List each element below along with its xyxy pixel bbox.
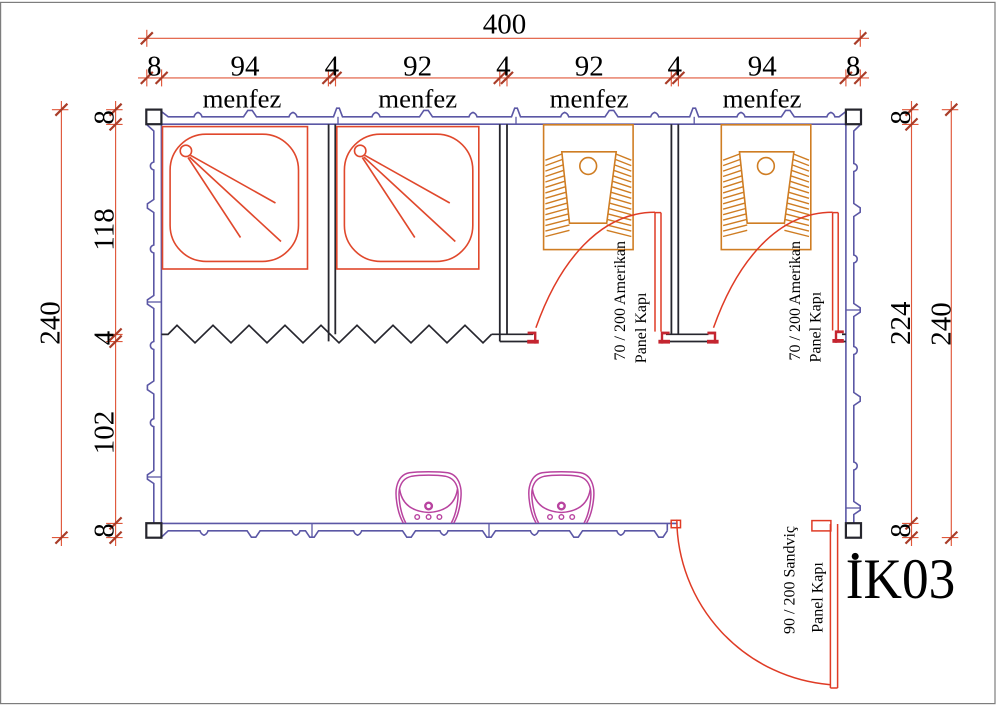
- svg-text:92: 92: [403, 50, 432, 82]
- svg-text:400: 400: [483, 9, 527, 41]
- svg-text:4: 4: [668, 50, 683, 82]
- svg-text:Panel Kapı: Panel Kapı: [633, 292, 650, 363]
- svg-text:224: 224: [885, 301, 917, 345]
- svg-text:IK03: IK03: [846, 547, 955, 610]
- svg-text:70 / 200 Amerikan: 70 / 200 Amerikan: [612, 241, 629, 361]
- svg-text:94: 94: [748, 50, 778, 82]
- svg-text:4: 4: [325, 50, 340, 82]
- svg-text:8: 8: [147, 50, 162, 82]
- svg-text:240: 240: [35, 301, 67, 345]
- svg-text:240: 240: [925, 302, 957, 346]
- svg-text:menfez: menfez: [378, 83, 457, 113]
- svg-text:118: 118: [89, 208, 121, 250]
- svg-text:8: 8: [885, 523, 917, 538]
- svg-text:Panel Kapı: Panel Kapı: [807, 291, 824, 362]
- svg-text:8: 8: [846, 50, 861, 82]
- svg-text:70 / 200 Amerikan: 70 / 200 Amerikan: [787, 241, 804, 361]
- svg-text:8: 8: [89, 523, 121, 538]
- svg-text:menfez: menfez: [550, 83, 629, 113]
- svg-text:8: 8: [885, 110, 917, 125]
- svg-text:menfez: menfez: [723, 83, 802, 113]
- svg-text:4: 4: [89, 330, 121, 345]
- svg-text:90 / 200 Sandviç: 90 / 200 Sandviç: [782, 526, 799, 634]
- svg-text:4: 4: [496, 50, 511, 82]
- svg-text:94: 94: [231, 50, 261, 82]
- svg-text:menfez: menfez: [203, 83, 282, 113]
- svg-text:Panel Kapı: Panel Kapı: [810, 562, 827, 633]
- svg-text:102: 102: [89, 411, 121, 455]
- svg-text:8: 8: [89, 110, 121, 125]
- svg-text:92: 92: [575, 50, 604, 82]
